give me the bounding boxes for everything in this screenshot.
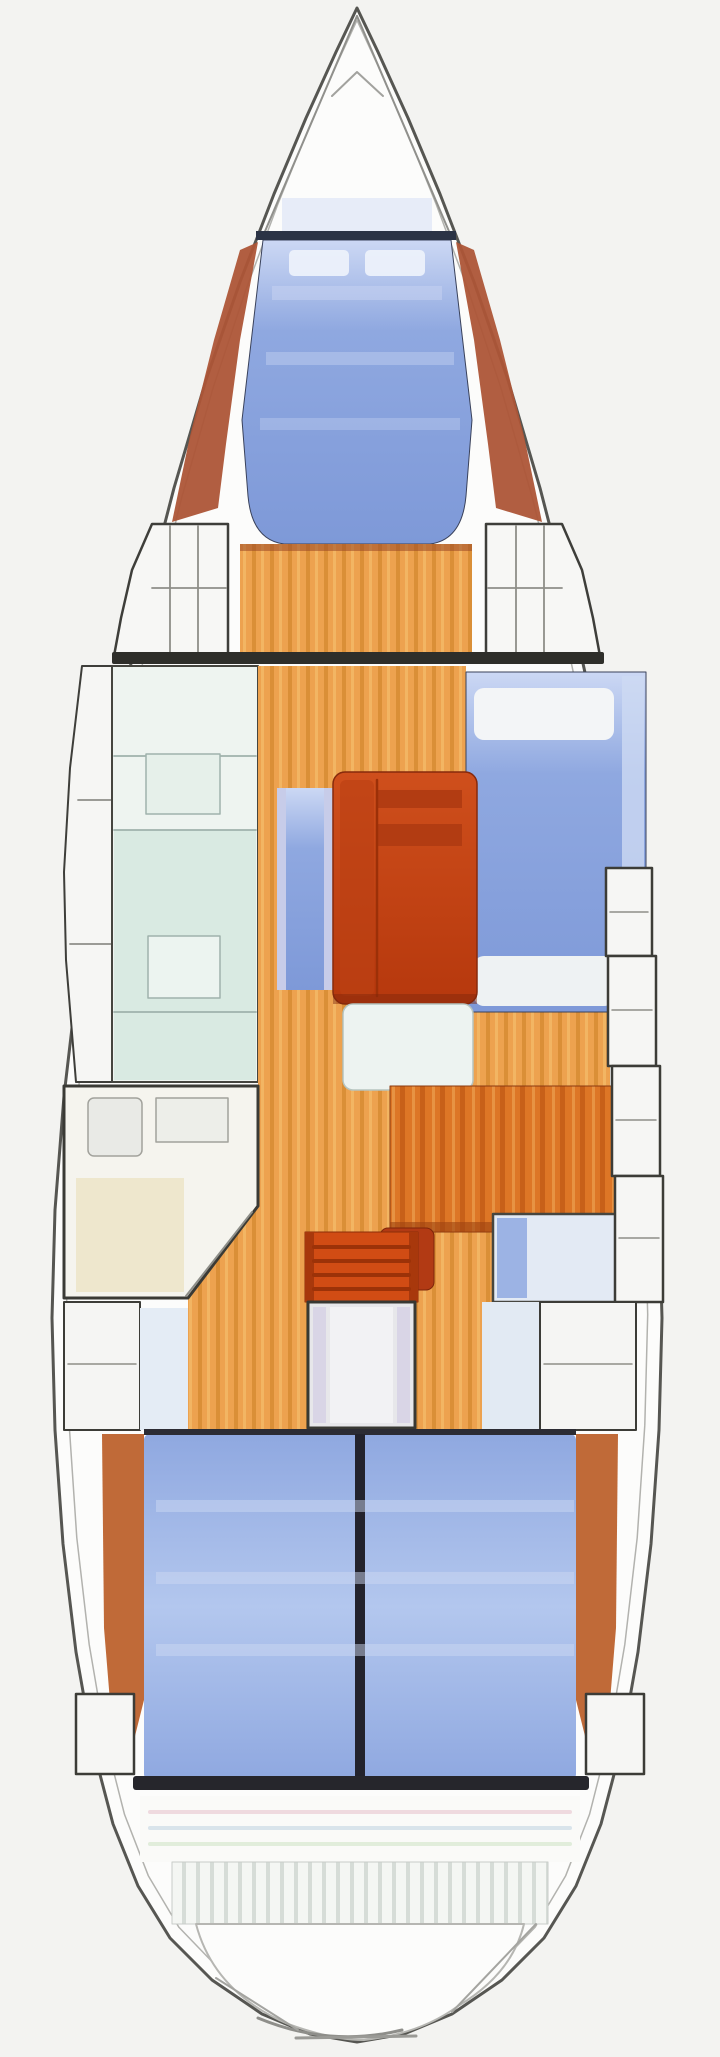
aft-berth-divider <box>355 1434 365 1780</box>
stbd-shelf-4 <box>615 1176 663 1302</box>
port-bench-edge-r <box>324 788 333 990</box>
salon-table-bar-1 <box>378 790 462 808</box>
aft-locker-port <box>64 1302 140 1430</box>
fwd-locker-stbd <box>486 524 600 656</box>
fwd-cabin-floor <box>240 544 472 656</box>
swim-platform <box>196 1924 524 2040</box>
floorplan <box>0 0 720 2057</box>
salon-table-left-leaf <box>340 780 374 996</box>
fwd-vberth <box>242 240 472 544</box>
stern-locker-stbd <box>586 1694 644 1774</box>
head-toilet <box>88 1098 142 1156</box>
aft-berth-band-2 <box>156 1572 574 1584</box>
fwd-berth-pillow-stbd <box>365 250 425 276</box>
companionway-steps <box>305 1232 418 1302</box>
aft-cabin-entry-strip <box>140 1308 188 1430</box>
head-floor-panel <box>76 1178 184 1292</box>
main-bulkhead <box>112 652 604 664</box>
quarter-berth-entry <box>482 1302 540 1430</box>
aft-berth-band-3 <box>156 1644 574 1656</box>
fwd-berth-panel-band-2 <box>266 352 454 365</box>
stbd-settee-cushion-fwd <box>474 688 614 740</box>
stbd-shelf-2 <box>608 956 656 1066</box>
aft-salon-seat <box>343 1004 473 1090</box>
stbd-shelf-3 <box>612 1066 660 1176</box>
head-sink <box>156 1098 228 1142</box>
aft-berth-foot-line <box>133 1776 589 1790</box>
fwd-berth-panel-band-1 <box>272 286 442 300</box>
fwd-berth-front-edge <box>240 544 472 551</box>
stern-locker-port <box>76 1694 134 1774</box>
galley-sink <box>148 936 220 998</box>
quarter-berth-blue-strip <box>497 1218 527 1298</box>
engine-box-center <box>330 1307 393 1423</box>
swim-platform-flat <box>296 2036 416 2038</box>
fwd-berth-pillow-port <box>289 250 349 276</box>
swim-platform-teak <box>172 1862 548 1924</box>
salon-table-shadow <box>333 994 477 1004</box>
engine-box-strip-l <box>313 1307 326 1423</box>
fwd-locker-port <box>114 524 228 656</box>
aft-berth-band-1 <box>156 1500 574 1512</box>
steps-rail-r <box>409 1232 418 1302</box>
page <box>0 0 720 2057</box>
fwd-berth-panel-band-3 <box>260 418 460 430</box>
engine-box-strip-r <box>397 1307 410 1423</box>
fwd-berth-head-line <box>256 231 456 240</box>
stbd-settee-cushion-aft <box>474 956 614 1006</box>
nav-station-desk <box>390 1086 628 1232</box>
port-hull-lockers <box>64 666 112 1082</box>
salon-table-bar-2 <box>378 824 462 846</box>
aft-locker-stbd <box>540 1302 636 1430</box>
steps-rail-l <box>305 1232 314 1302</box>
fwd-berth-head-glow <box>282 198 432 232</box>
port-bench-edge-l <box>277 788 286 990</box>
floorplan-svg <box>0 0 720 2057</box>
galley-stove <box>146 754 220 814</box>
